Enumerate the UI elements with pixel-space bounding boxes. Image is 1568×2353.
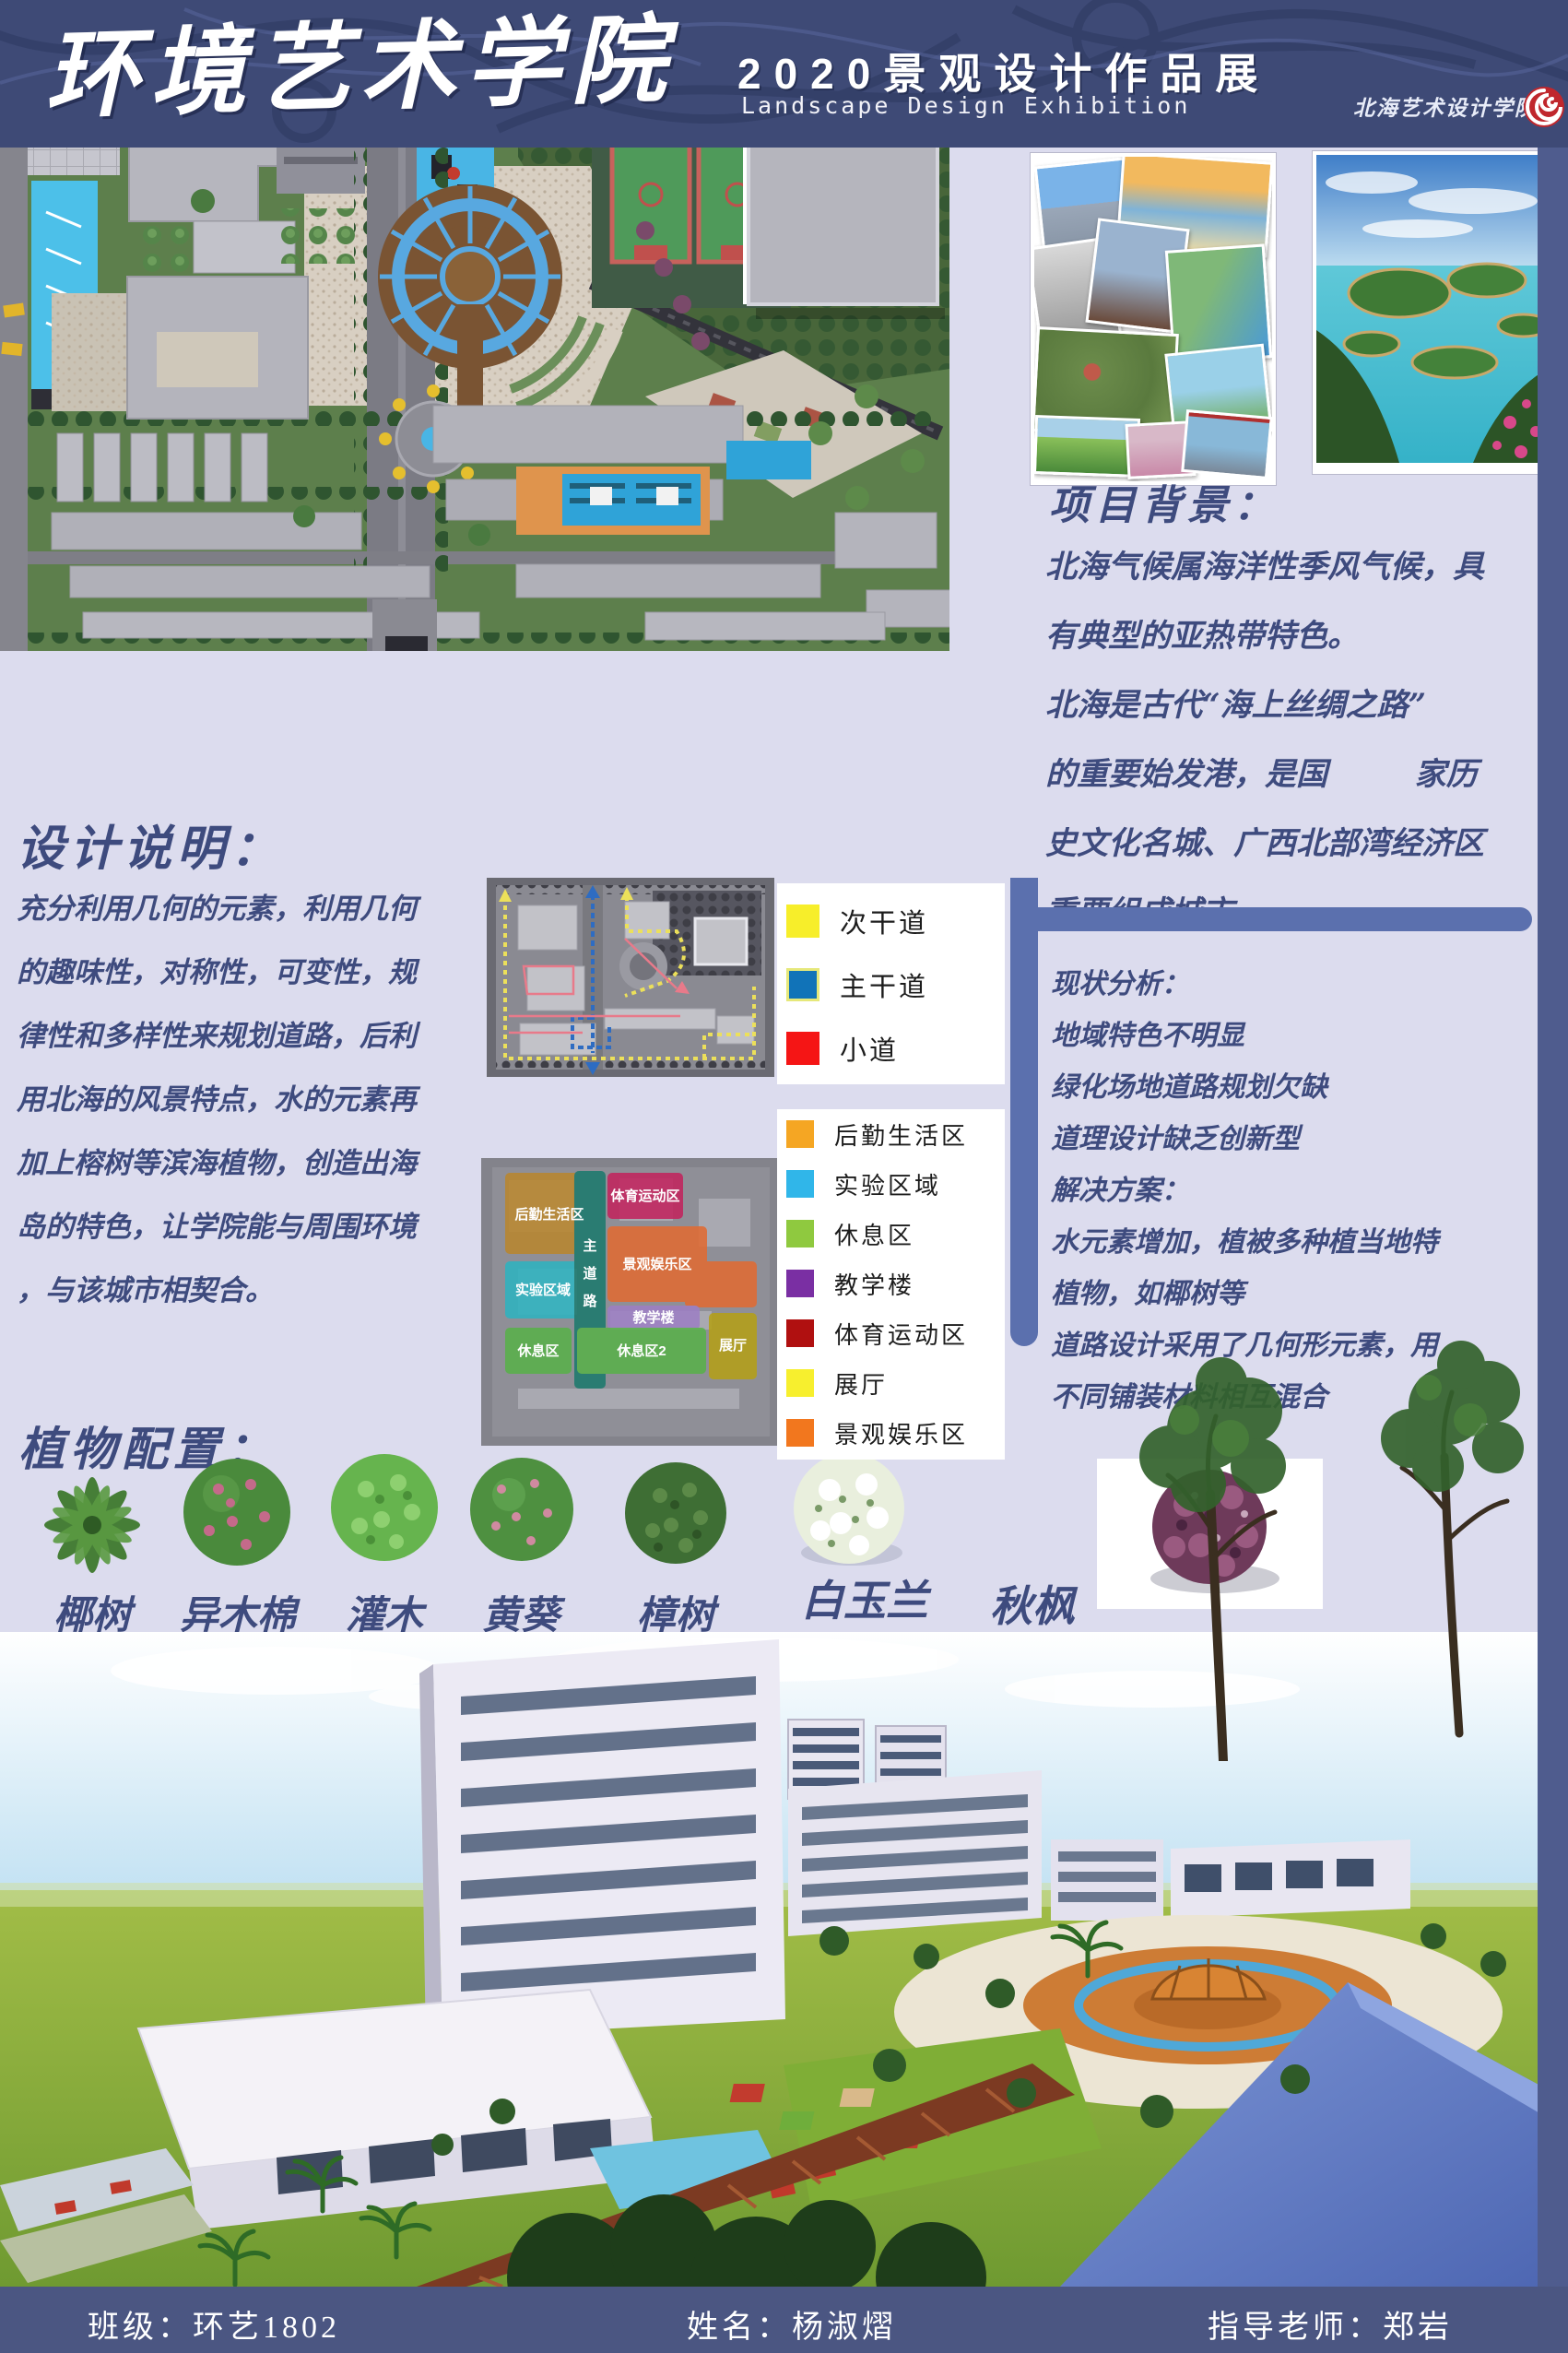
zone-label-sports: 体育运动区 — [610, 1188, 679, 1204]
vertical-divider-bar — [1010, 878, 1038, 1346]
legend-row: 主干道 — [777, 952, 1005, 1016]
plant-label: 秋枫 — [968, 1573, 1097, 1634]
legend-swatch-teaching — [786, 1270, 814, 1297]
beihai-photo-collage — [1031, 153, 1276, 485]
legend-swatch-logistics — [786, 1120, 814, 1148]
legend-row: 休息区 — [777, 1209, 1005, 1259]
plant-image-camphor — [619, 1457, 732, 1574]
legend-swatch-hall — [786, 1369, 814, 1397]
footer-advisor: 指导老师：郑岩 — [1208, 2301, 1453, 2347]
svg-text:道: 道 — [583, 1265, 596, 1282]
footer-class: 班级：环艺1802 — [88, 2301, 340, 2347]
legend-row: 实验区域 — [777, 1159, 1005, 1209]
legend-swatch-lab — [786, 1170, 814, 1198]
legend-row: 教学楼 — [777, 1259, 1005, 1308]
poster-title: 环境艺术学院 — [42, 0, 691, 136]
school-logo-swirl-icon — [1523, 83, 1565, 131]
svg-text:主: 主 — [583, 1237, 596, 1254]
poster-subtitle-en: Landscape Design Exhibition — [741, 92, 1190, 119]
island-lake-photo — [1313, 151, 1562, 474]
zone-label-logistics: 后勤生活区 — [514, 1206, 584, 1223]
zoning-analysis-diagram: 后勤生活区 体育运动区 景观娱乐区 实验区域 教学楼 休息区 休息区2 展厅 主… — [481, 1158, 781, 1446]
legend-swatch-path — [786, 1032, 819, 1065]
zone-label-main-road: 主 道 路 — [583, 1237, 597, 1309]
footer-name: 姓名：杨淑熠 — [687, 2301, 897, 2347]
legend-label: 教学楼 — [834, 1267, 914, 1301]
road-analysis-diagram — [487, 878, 774, 1077]
horizontal-divider-bar — [1023, 907, 1532, 931]
legend-row: 后勤生活区 — [777, 1109, 1005, 1159]
plant-image-shrub — [324, 1448, 444, 1572]
plant-label: 白玉兰 — [782, 1567, 948, 1628]
legend-zones: 后勤生活区 实验区域 休息区 教学楼 体育运动区 展厅 景观娱乐区 — [777, 1109, 1005, 1460]
legend-swatch-rest — [786, 1220, 814, 1247]
zone-label-rest1: 休息区 — [516, 1342, 559, 1359]
legend-row: 体育运动区 — [777, 1308, 1005, 1358]
legend-row: 小道 — [777, 1016, 1005, 1080]
legend-row: 次干道 — [777, 889, 1005, 952]
legend-label: 展厅 — [834, 1366, 888, 1401]
legend-swatch-main-road — [786, 968, 819, 1001]
legend-label: 体育运动区 — [834, 1317, 968, 1351]
cutout-trees-image — [1120, 1328, 1568, 1761]
design-description-body: 充分利用几何的元素，利用几何 的趣味性，对称性，可变性，规 律性和多样性来规划道… — [17, 878, 489, 1323]
right-border-strip — [1538, 148, 1568, 2287]
project-background-body: 北海气候属海洋性季风气候，具 有典型的亚热带特色。 北海是古代“海上丝绸之路” … — [1045, 533, 1543, 948]
legend-swatch-sports — [786, 1319, 814, 1347]
project-background-title: 项目背景： — [1049, 472, 1279, 531]
design-description-title: 设计说明： — [17, 810, 284, 879]
footer-bar: 班级：环艺1802 姓名：杨淑熠 指导老师：郑岩 — [0, 2287, 1568, 2353]
exhibition-poster: 环境艺术学院 2020景观设计作品展 Landscape Design Exhi… — [0, 0, 1568, 2353]
legend-roads: 次干道 主干道 小道 — [777, 883, 1005, 1084]
school-logo-text: 北海艺术设计学院 — [1353, 90, 1538, 122]
plant-image-silkfloss — [177, 1452, 297, 1577]
legend-label: 后勤生活区 — [834, 1117, 968, 1152]
legend-label: 次干道 — [840, 902, 928, 940]
legend-swatch-entertain — [786, 1419, 814, 1447]
legend-label: 休息区 — [834, 1217, 914, 1251]
legend-row: 景观娱乐区 — [777, 1408, 1005, 1458]
plant-image-hibiscus — [463, 1450, 581, 1573]
plant-image-coconut — [33, 1464, 151, 1590]
legend-label: 主干道 — [840, 965, 928, 1004]
zone-label-lab: 实验区域 — [515, 1282, 571, 1298]
zone-label-rest2: 休息区2 — [616, 1342, 666, 1359]
zone-label-hall: 展厅 — [719, 1338, 747, 1354]
header-banner: 环境艺术学院 2020景观设计作品展 Landscape Design Exhi… — [0, 0, 1568, 148]
plant-image-magnolia — [785, 1449, 913, 1581]
legend-label: 小道 — [840, 1029, 899, 1068]
zone-label-teaching: 教学楼 — [631, 1309, 674, 1326]
legend-label: 实验区域 — [834, 1167, 941, 1201]
zone-label-entertain: 景观娱乐区 — [622, 1256, 691, 1272]
legend-label: 景观娱乐区 — [834, 1416, 968, 1450]
legend-row: 展厅 — [777, 1358, 1005, 1408]
legend-swatch-secondary-road — [786, 905, 819, 938]
svg-text:路: 路 — [583, 1293, 597, 1309]
